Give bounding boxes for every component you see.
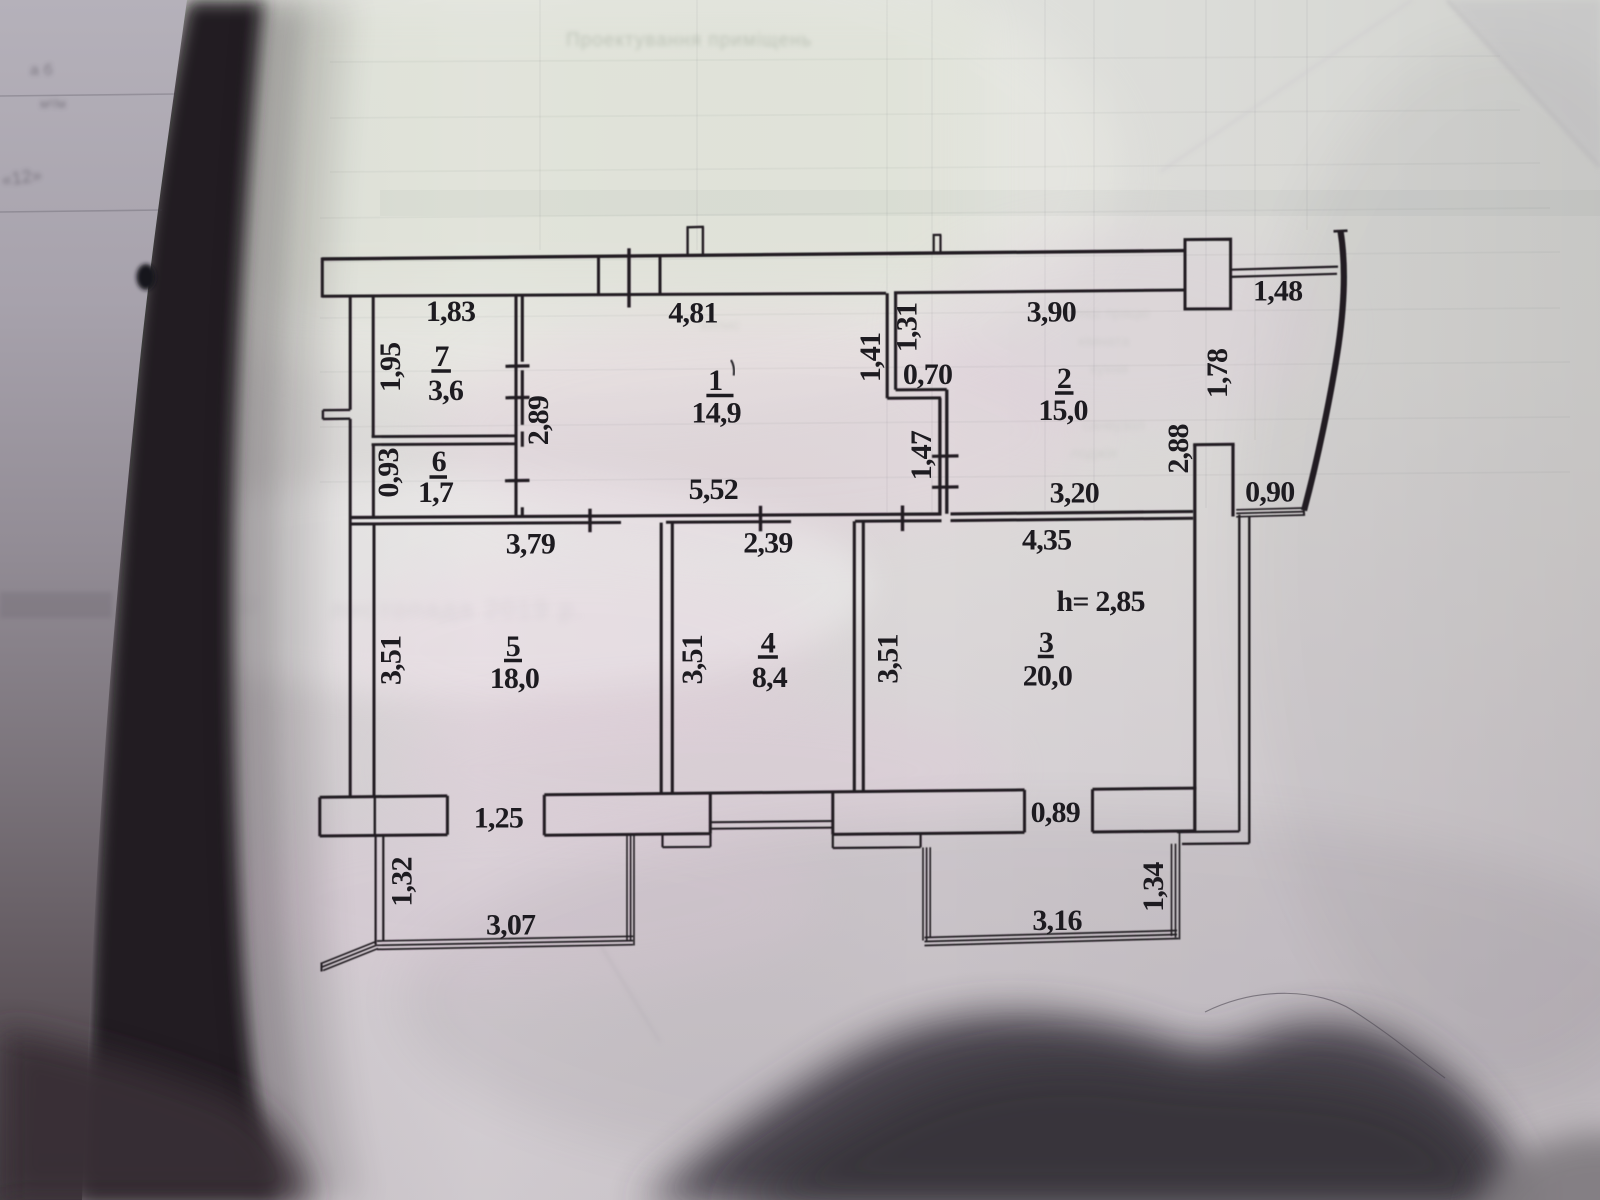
svg-text:0,90: 0,90 <box>1245 476 1294 509</box>
svg-text:0,93: 0,93 <box>372 448 405 497</box>
svg-text:кімната: кімната <box>1078 333 1130 350</box>
svg-text:1: 1 <box>708 364 722 397</box>
svg-text:1,41: 1,41 <box>854 333 887 382</box>
svg-text:1,32: 1,32 <box>386 857 419 906</box>
svg-text:кухня: кухня <box>1090 361 1128 378</box>
svg-text:2,88: 2,88 <box>1162 424 1195 473</box>
svg-text:20,0: 20,0 <box>1023 660 1072 693</box>
svg-text:3,90: 3,90 <box>1027 295 1076 328</box>
svg-text:санвузол: санвузол <box>1082 417 1145 434</box>
svg-text:3,51: 3,51 <box>872 634 905 683</box>
svg-text:0,70: 0,70 <box>903 358 952 391</box>
svg-text:2: 2 <box>1057 362 1071 395</box>
svg-text:1,7: 1,7 <box>418 476 454 509</box>
svg-text:3,79: 3,79 <box>506 527 555 560</box>
svg-text:1,34: 1,34 <box>1137 862 1170 912</box>
svg-text:0,89: 0,89 <box>1031 796 1080 829</box>
svg-text:18,0: 18,0 <box>490 662 539 695</box>
svg-text:3,51: 3,51 <box>375 636 408 685</box>
svg-text:листопада 2019 р.: листопада 2019 р. <box>330 594 585 624</box>
svg-text:2,39: 2,39 <box>743 527 792 560</box>
svg-text:1,31: 1,31 <box>891 303 924 352</box>
svg-text:лоджія: лоджія <box>1070 445 1117 462</box>
svg-text:3: 3 <box>1039 626 1053 659</box>
svg-text:4,35: 4,35 <box>1022 524 1071 557</box>
svg-text:м²/м: м²/м <box>40 96 66 111</box>
svg-text:1,95: 1,95 <box>374 343 407 392</box>
svg-text:3,6: 3,6 <box>428 374 464 407</box>
svg-text:5: 5 <box>506 630 520 663</box>
svg-text:6: 6 <box>432 445 447 478</box>
svg-text:1,25: 1,25 <box>474 802 523 835</box>
svg-text:Проектування приміщень: Проектування приміщень <box>566 30 812 51</box>
svg-text:4: 4 <box>761 627 776 660</box>
svg-text:5,52: 5,52 <box>689 473 738 506</box>
svg-text:15,0: 15,0 <box>1038 394 1087 427</box>
svg-text:7: 7 <box>434 340 449 373</box>
svg-text:h= 2,85: h= 2,85 <box>1057 585 1145 618</box>
svg-text:1,78: 1,78 <box>1201 349 1234 398</box>
svg-text:3,07: 3,07 <box>486 909 536 942</box>
svg-text:8,4: 8,4 <box>752 661 788 694</box>
svg-text:1,47: 1,47 <box>905 430 938 480</box>
svg-text:1,83: 1,83 <box>426 295 475 328</box>
svg-text:1,48: 1,48 <box>1253 275 1302 308</box>
svg-text:2,89: 2,89 <box>522 396 555 445</box>
svg-text:3,20: 3,20 <box>1050 477 1099 510</box>
svg-text:14,9: 14,9 <box>692 396 741 429</box>
svg-text:а б: а б <box>30 62 53 79</box>
svg-text:4,81: 4,81 <box>668 297 717 330</box>
svg-text:3,51: 3,51 <box>676 635 709 684</box>
svg-text:3,16: 3,16 <box>1032 904 1082 937</box>
